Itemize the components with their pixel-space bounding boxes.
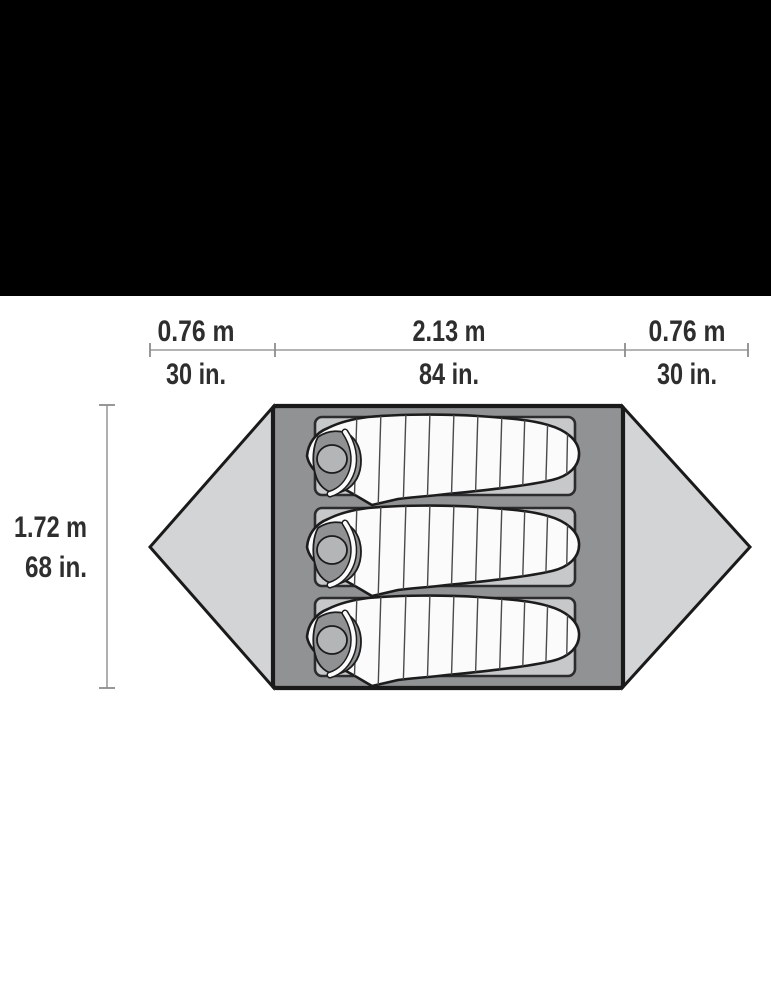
floor-length-metric: 2.13 m — [413, 315, 486, 348]
floor-length-imperial: 84 in. — [419, 358, 479, 391]
side-dimension-line: 1.72 m 68 in. — [14, 405, 115, 688]
left-vestibule-width-metric: 0.76 m — [158, 315, 235, 348]
tent-floorplan-diagram: 0.76 m 30 in. 2.13 m 84 in. 0.76 m 30 in… — [0, 0, 771, 1000]
floor-depth-imperial: 68 in. — [25, 551, 87, 584]
top-black-bar — [0, 0, 771, 296]
left-vestibule-width-imperial: 30 in. — [166, 358, 226, 391]
top-dimension-line: 0.76 m 30 in. 2.13 m 84 in. 0.76 m 30 in… — [150, 315, 748, 391]
floor-depth-metric: 1.72 m — [14, 511, 87, 544]
right-vestibule — [623, 407, 750, 687]
left-vestibule — [150, 407, 273, 687]
right-vestibule-width-metric: 0.76 m — [649, 315, 726, 348]
tent-floorplan-page: 0.76 m 30 in. 2.13 m 84 in. 0.76 m 30 in… — [0, 0, 771, 1000]
right-vestibule-width-imperial: 30 in. — [657, 358, 717, 391]
